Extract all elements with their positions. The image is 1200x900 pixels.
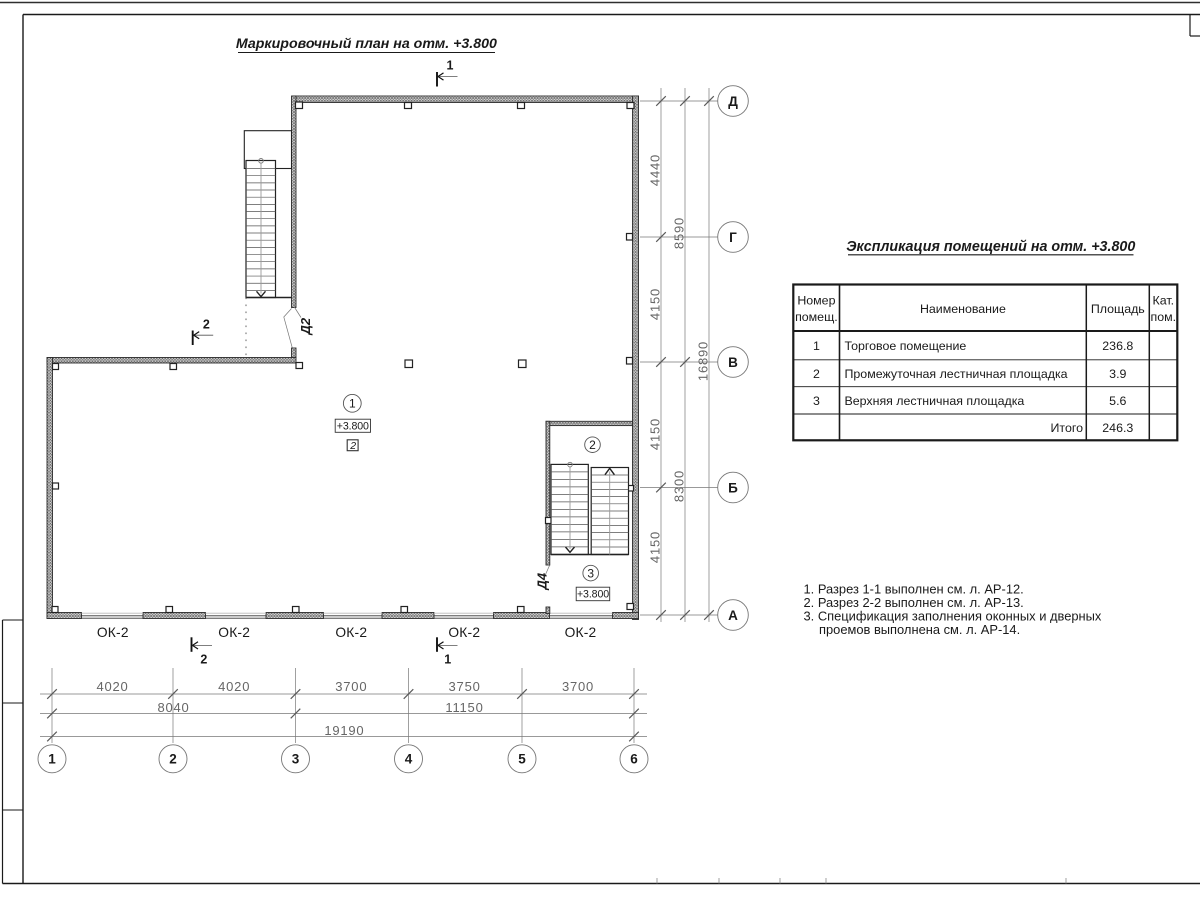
svg-text:3: 3 [813, 394, 820, 408]
svg-text:Площадь: Площадь [1091, 302, 1145, 316]
svg-text:2: 2 [589, 438, 596, 452]
svg-text:5.6: 5.6 [1109, 394, 1126, 408]
svg-text:8590: 8590 [672, 217, 687, 249]
svg-text:Кат.: Кат. [1153, 293, 1175, 307]
svg-text:Верхняя лестничная площадка: Верхняя лестничная площадка [845, 394, 1025, 408]
svg-text:помещ.: помещ. [795, 310, 838, 324]
svg-text:Д: Д [728, 94, 738, 109]
svg-text:Д2: Д2 [298, 317, 313, 335]
svg-text:+3.800: +3.800 [577, 589, 609, 601]
svg-text:Итого: Итого [1051, 421, 1084, 435]
svg-text:246.3: 246.3 [1102, 421, 1133, 435]
svg-text:3750: 3750 [449, 679, 481, 694]
svg-text:ОК-2: ОК-2 [218, 625, 250, 640]
svg-text:4150: 4150 [648, 288, 663, 320]
svg-text:В: В [728, 355, 738, 370]
svg-text:ОК-2: ОК-2 [565, 625, 597, 640]
svg-text:Промежуточная лестничная площа: Промежуточная лестничная площадка [845, 367, 1068, 381]
svg-text:4150: 4150 [648, 531, 663, 563]
svg-text:+3.800: +3.800 [337, 420, 369, 432]
svg-text:2: 2 [813, 367, 820, 381]
svg-text:2: 2 [203, 318, 210, 332]
svg-text:4020: 4020 [218, 679, 250, 694]
svg-text:ОК-2: ОК-2 [335, 625, 367, 640]
svg-text:Номер: Номер [797, 293, 835, 307]
svg-text:3.9: 3.9 [1109, 367, 1126, 381]
svg-text:Д4: Д4 [535, 572, 550, 590]
svg-text:3: 3 [292, 751, 300, 766]
svg-text:1: 1 [813, 339, 820, 353]
svg-text:4440: 4440 [648, 154, 663, 186]
svg-text:11150: 11150 [445, 700, 483, 715]
svg-text:1: 1 [349, 397, 356, 411]
svg-text:Наименование: Наименование [920, 302, 1006, 316]
svg-text:ОК-2: ОК-2 [448, 625, 480, 640]
svg-text:16890: 16890 [696, 341, 711, 381]
svg-text:8040: 8040 [157, 700, 189, 715]
svg-text:пом.: пом. [1151, 310, 1177, 324]
svg-text:19190: 19190 [324, 723, 364, 738]
svg-text:1: 1 [444, 653, 451, 667]
svg-text:3: 3 [587, 566, 594, 580]
svg-text:8300: 8300 [672, 470, 687, 502]
svg-text:Г: Г [729, 230, 737, 245]
svg-text:1: 1 [447, 59, 454, 73]
svg-text:4020: 4020 [96, 679, 128, 694]
svg-text:проемов выполнена см. л. АР-14: проемов выполнена см. л. АР-14. [819, 622, 1020, 637]
svg-text:1: 1 [48, 751, 56, 766]
svg-text:6: 6 [630, 751, 638, 766]
svg-text:3700: 3700 [562, 679, 594, 694]
svg-text:3700: 3700 [335, 679, 367, 694]
svg-text:5: 5 [518, 751, 526, 766]
svg-text:ОК-2: ОК-2 [97, 625, 129, 640]
svg-text:4150: 4150 [648, 418, 663, 450]
svg-text:236.8: 236.8 [1102, 339, 1133, 353]
svg-text:Торговое помещение: Торговое помещение [845, 339, 967, 353]
svg-text:Экспликация помещений на отм.: Экспликация помещений на отм. +3.800 [846, 239, 1135, 255]
svg-text:Б: Б [728, 480, 738, 495]
svg-text:4: 4 [405, 751, 413, 766]
svg-text:2: 2 [349, 440, 356, 452]
svg-text:А: А [728, 608, 738, 623]
svg-text:2: 2 [200, 653, 207, 667]
svg-text:2: 2 [169, 751, 177, 766]
svg-text:Маркировочный план на отм. +3.: Маркировочный план на отм. +3.800 [236, 36, 497, 52]
